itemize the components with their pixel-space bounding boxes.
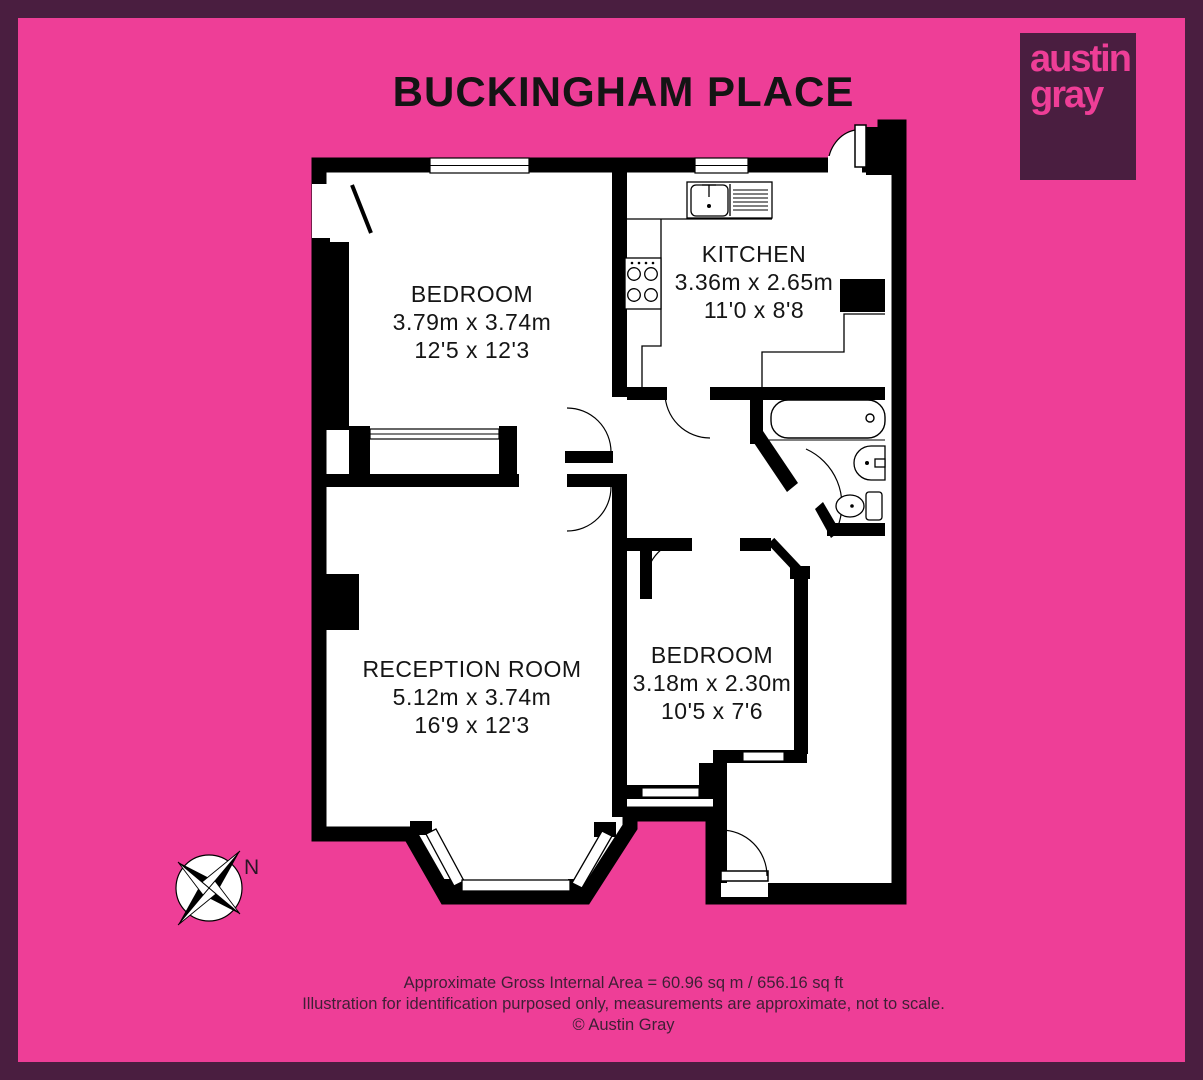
bedroom1-window [430,158,529,173]
front-door-leaf [721,871,768,881]
compass-icon: N [176,851,259,925]
reception-door-opening [567,463,611,474]
bedroom2-window [642,788,699,797]
footer-area-text: Approximate Gross Internal Area = 60.96 … [40,973,1203,994]
kitchen-window [695,158,748,173]
floorplan-drawing: BEDROOM 3.79m x 3.74m 12'5 x 12'3 KITCHE… [0,0,1203,1080]
floorplan-page: BUCKINGHAM PLACE austin gray [0,0,1203,1080]
svg-text:3.36m x 2.65m: 3.36m x 2.65m [675,269,834,295]
svg-text:12'5 x 12'3: 12'5 x 12'3 [414,337,529,363]
flat-outline [319,127,899,897]
svg-text:BEDROOM: BEDROOM [651,642,773,668]
svg-text:10'5 x 7'6: 10'5 x 7'6 [661,698,763,724]
entry-door-leaf [855,125,866,167]
bedroom1-alcove [370,429,499,439]
svg-text:BEDROOM: BEDROOM [411,281,533,307]
compass-north-label: N [244,856,259,879]
svg-text:RECEPTION ROOM: RECEPTION ROOM [362,656,581,682]
footer-disclaimer-text: Illustration for identification purposed… [40,994,1203,1015]
basin [854,446,885,480]
hob [625,258,661,309]
svg-text:3.18m x 2.30m: 3.18m x 2.30m [633,670,792,696]
svg-text:11'0 x 8'8: 11'0 x 8'8 [704,297,804,323]
svg-text:5.12m x 3.74m: 5.12m x 3.74m [393,684,552,710]
svg-text:16'9 x 12'3: 16'9 x 12'3 [414,712,529,738]
svg-text:3.79m x 3.74m: 3.79m x 3.74m [393,309,552,335]
footer-copyright-text: © Austin Gray [40,1015,1203,1036]
svg-text:KITCHEN: KITCHEN [702,241,806,267]
bedroom1-door-opening [312,184,332,238]
corridor-window [743,752,784,761]
kitchen-sink [687,182,772,218]
front-door-opening [721,883,768,897]
bathtub [763,400,885,440]
room-label-bedroom-1: BEDROOM 3.79m x 3.74m 12'5 x 12'3 [393,281,552,363]
